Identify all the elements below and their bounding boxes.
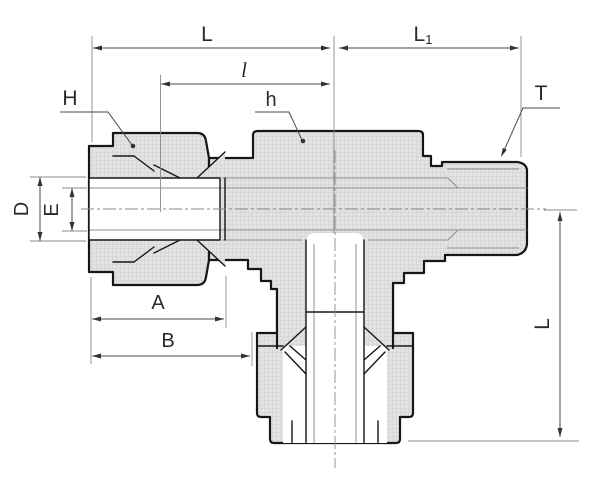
dim-label-L-side: L (531, 318, 554, 330)
dim-label-l: l (241, 58, 247, 82)
fitting-section-drawing: L l L1 T H h D E A B L (0, 0, 603, 485)
dim-label-E: E (41, 203, 63, 216)
dim-label-B: B (161, 330, 174, 352)
dim-label-L1: L1 (414, 23, 433, 47)
dim-label-H: H (62, 87, 77, 110)
leader-T (502, 108, 560, 155)
dim-label-T: T (535, 82, 548, 105)
dim-label-L-top: L (201, 23, 213, 46)
dim-label-D: D (11, 202, 33, 216)
dim-label-A: A (151, 292, 165, 314)
dim-label-h: h (265, 89, 276, 111)
technical-drawing-canvas: L l L1 T H h D E A B L (0, 0, 603, 485)
